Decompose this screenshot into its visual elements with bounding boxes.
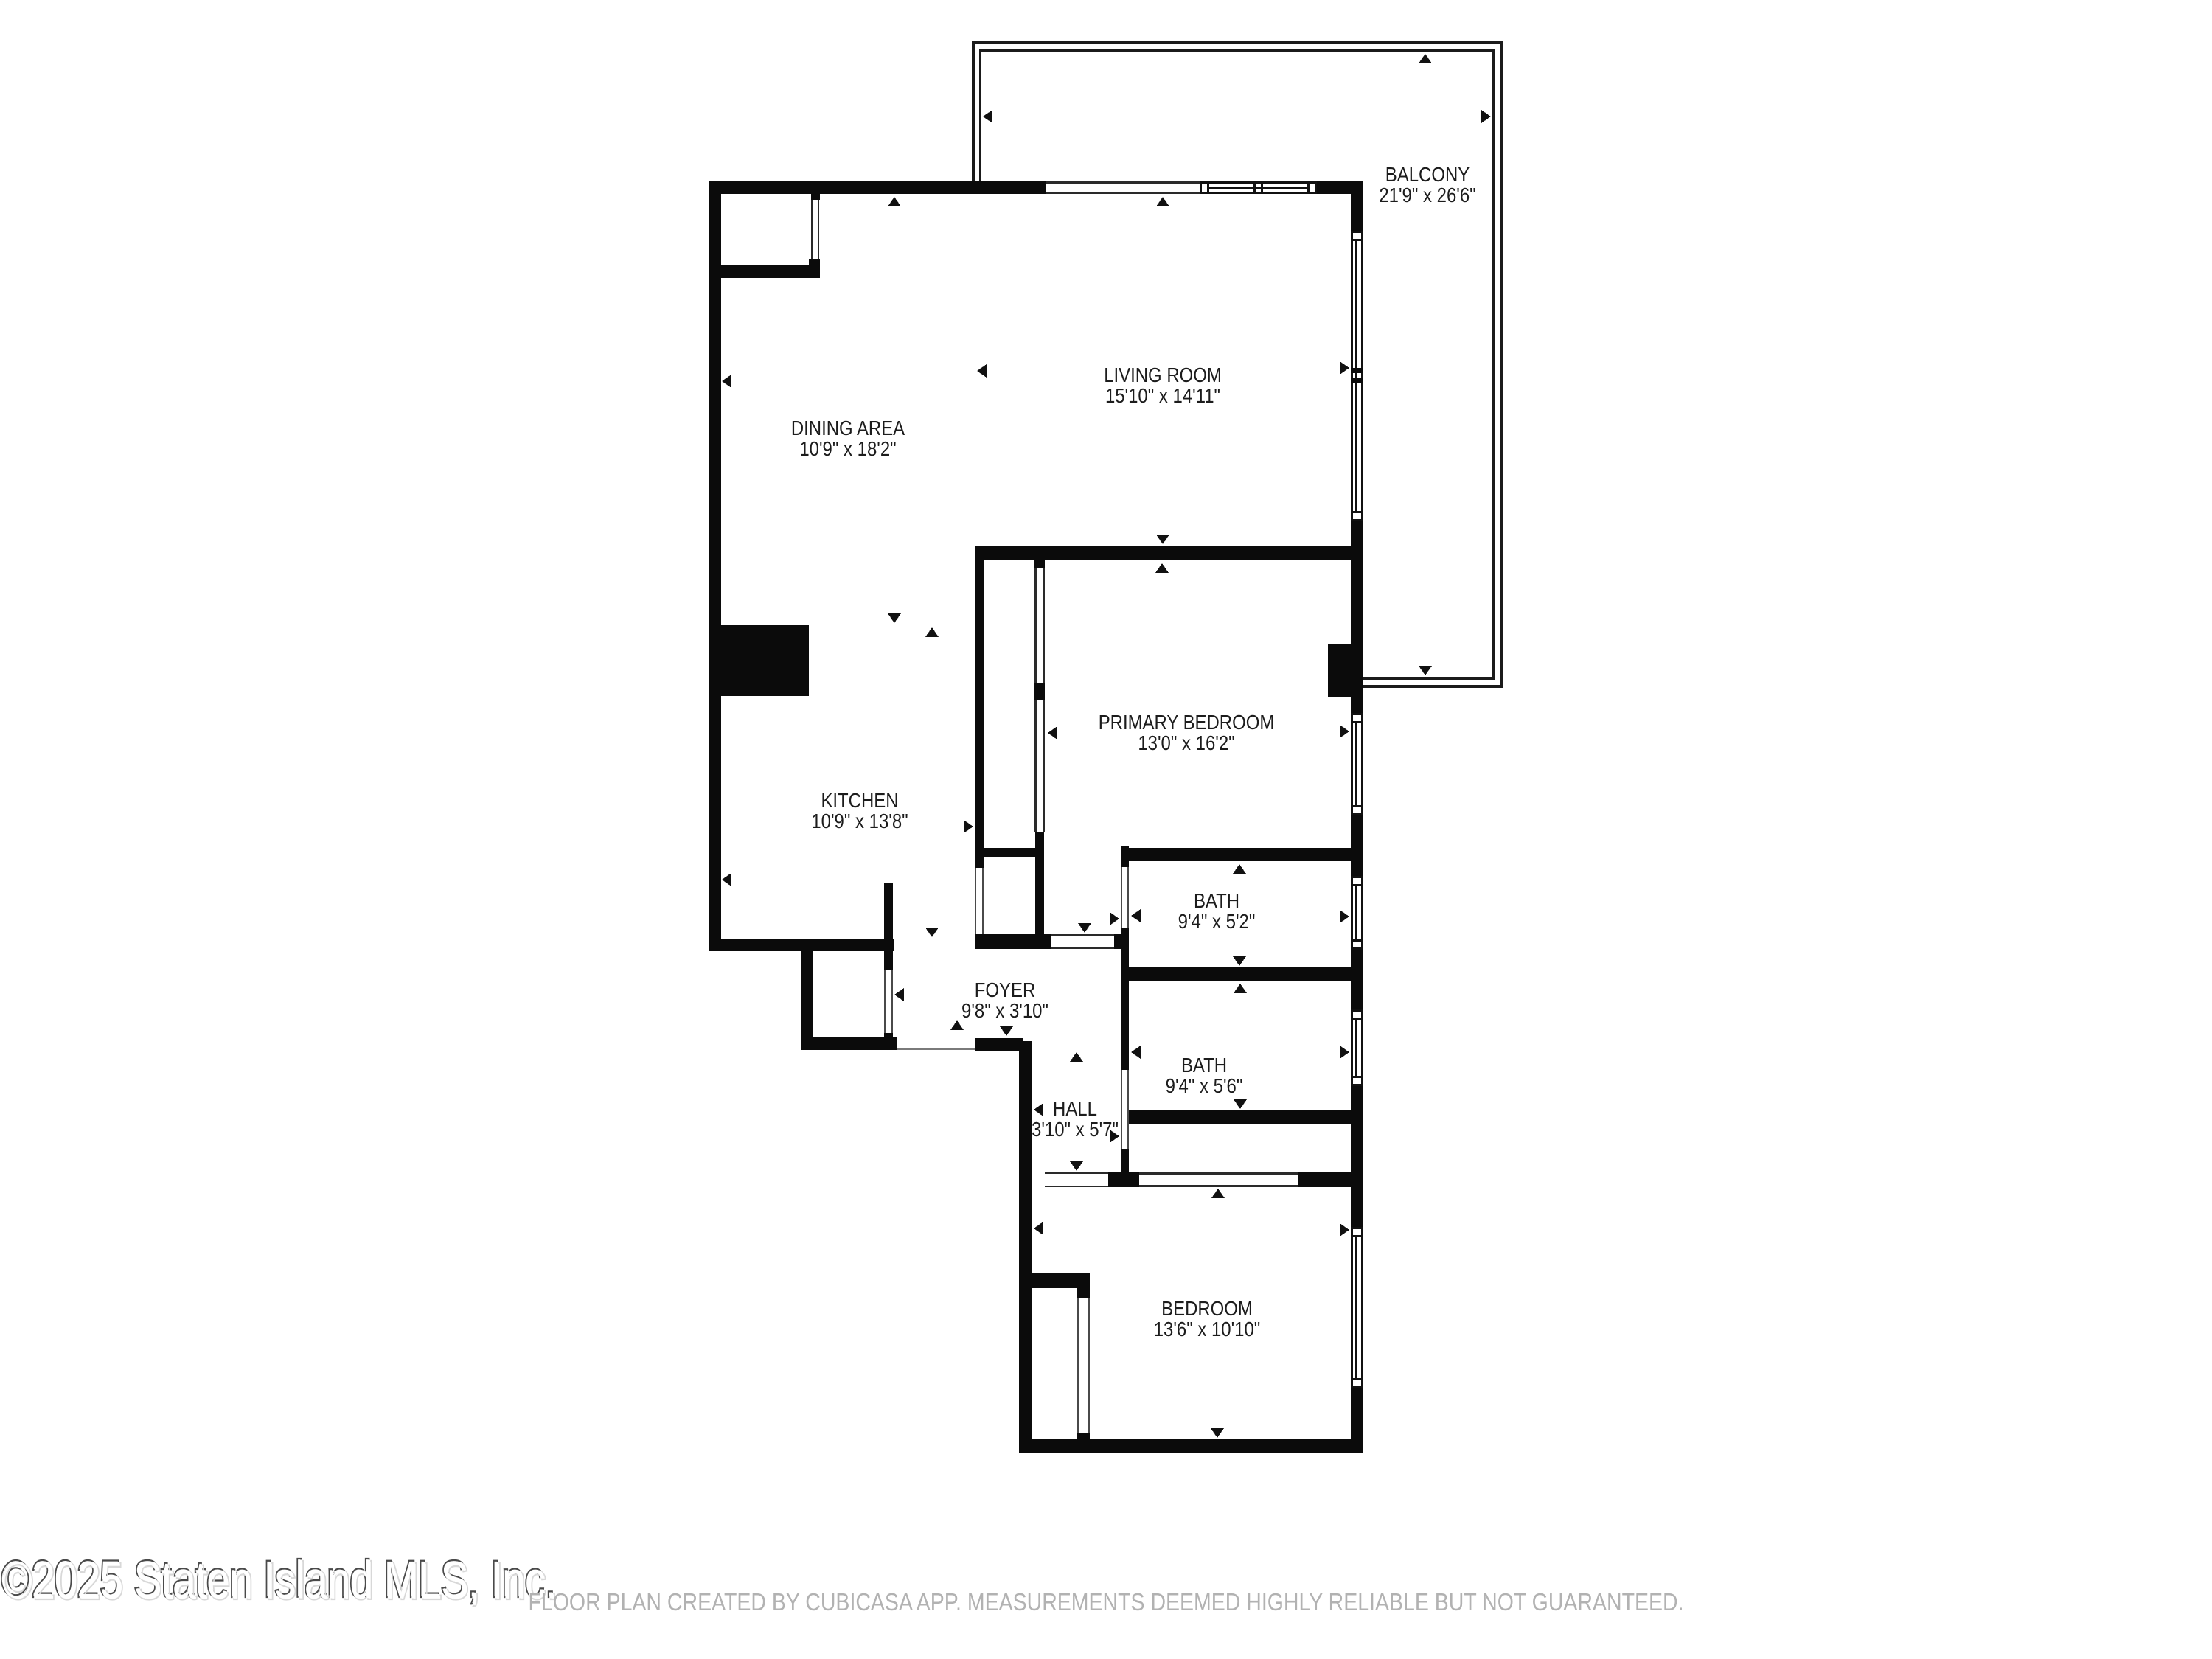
svg-text:BATH: BATH (1194, 889, 1239, 912)
svg-text:3'10" x 5'7": 3'10" x 5'7" (1032, 1118, 1119, 1141)
svg-text:9'4" x 5'2": 9'4" x 5'2" (1178, 910, 1256, 933)
svg-text:LIVING ROOM: LIVING ROOM (1104, 364, 1222, 386)
svg-text:9'8" x 3'10": 9'8" x 3'10" (961, 999, 1048, 1022)
svg-text:10'9" x 13'8": 10'9" x 13'8" (811, 810, 908, 832)
svg-text:13'0" x 16'2": 13'0" x 16'2" (1138, 731, 1234, 754)
svg-text:BALCONY: BALCONY (1385, 163, 1470, 186)
svg-text:FOYER: FOYER (975, 978, 1036, 1001)
svg-text:BEDROOM: BEDROOM (1161, 1297, 1253, 1320)
svg-text:KITCHEN: KITCHEN (821, 789, 898, 812)
svg-text:9'4" x 5'6": 9'4" x 5'6" (1166, 1074, 1243, 1097)
svg-text:HALL: HALL (1053, 1097, 1097, 1120)
svg-text:15'10" x 14'11": 15'10" x 14'11" (1105, 384, 1220, 407)
svg-text:BATH: BATH (1181, 1054, 1227, 1077)
svg-text:©2025 Staten Island MLS, Inc.: ©2025 Staten Island MLS, Inc. (2, 1552, 557, 1610)
svg-text:PRIMARY BEDROOM: PRIMARY BEDROOM (1099, 711, 1275, 734)
svg-text:FLOOR PLAN CREATED BY CUBICASA: FLOOR PLAN CREATED BY CUBICASA APP. MEAS… (529, 1588, 1684, 1615)
svg-text:DINING AREA: DINING AREA (791, 417, 905, 439)
svg-text:10'9" x 18'2": 10'9" x 18'2" (799, 437, 896, 460)
svg-text:13'6" x 10'10": 13'6" x 10'10" (1154, 1318, 1261, 1340)
svg-text:21'9" x 26'6": 21'9" x 26'6" (1379, 184, 1475, 206)
